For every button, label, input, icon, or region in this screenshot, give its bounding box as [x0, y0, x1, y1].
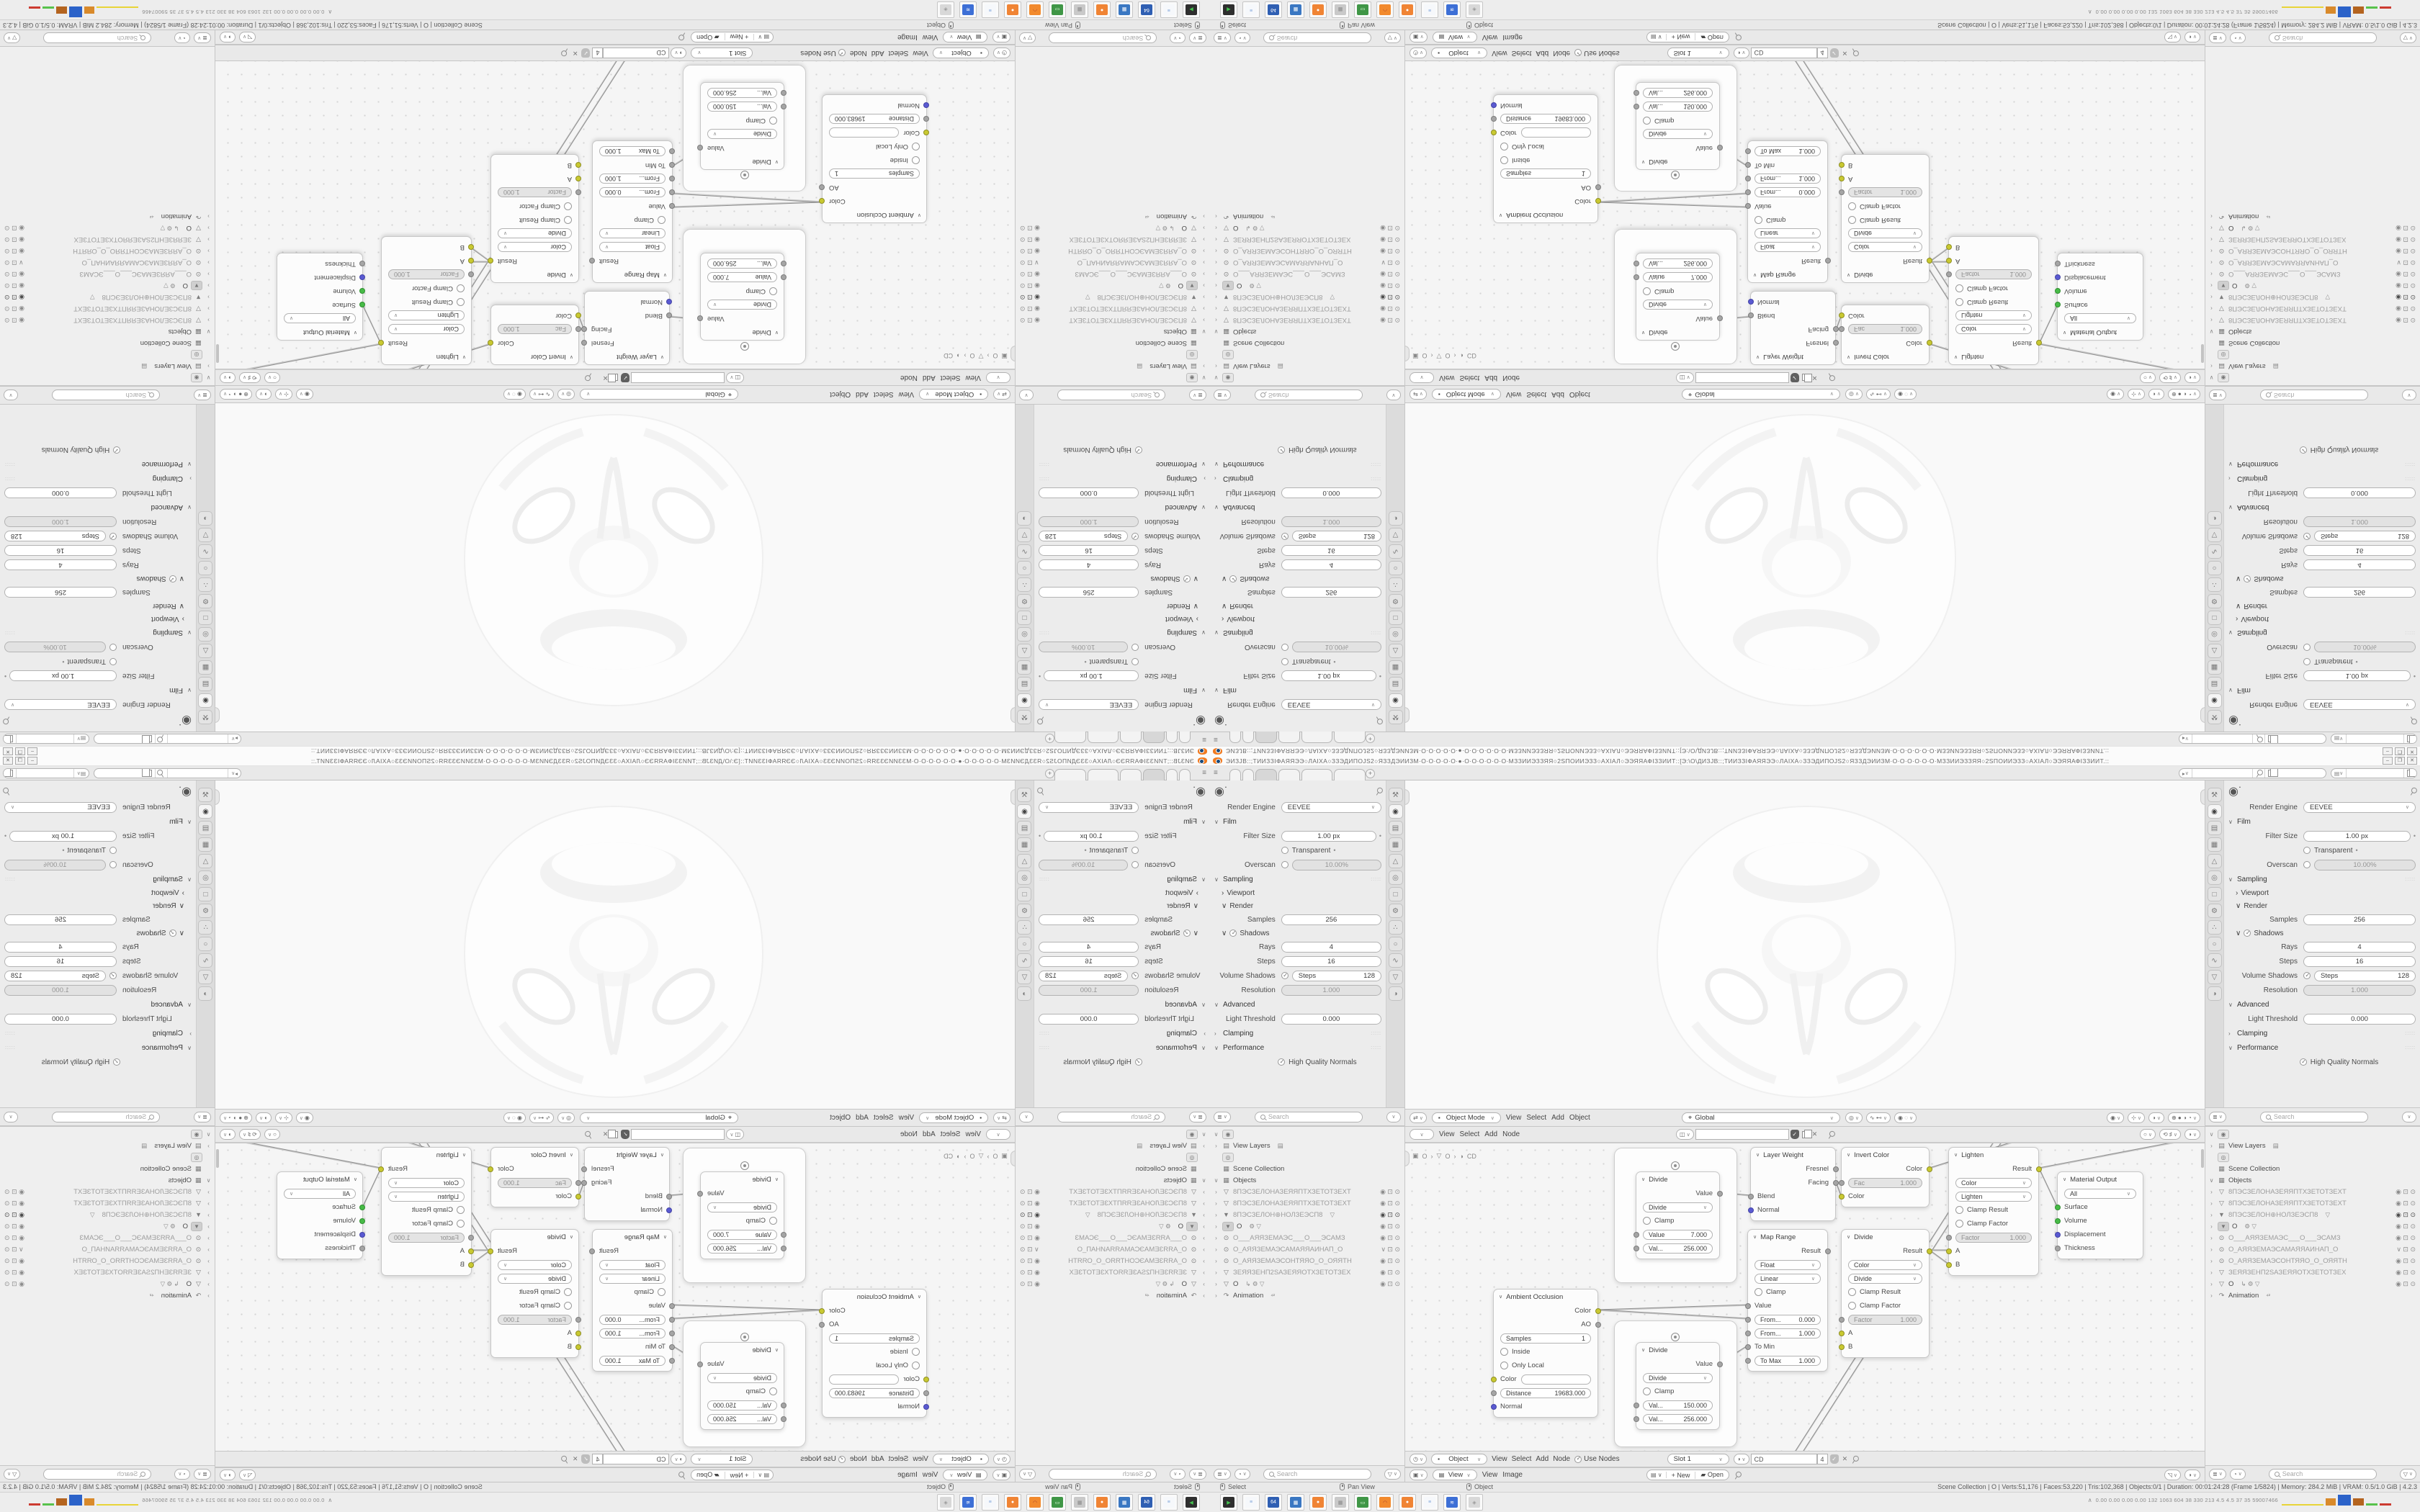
- outliner-item[interactable]: ›⊙О_АЯЯЗЕМАЭСАМАЯЯАИНАП_О∨ ⊡ ⊙: [1017, 1243, 1207, 1255]
- node-row-val[interactable]: Val...256.000: [701, 86, 784, 100]
- workspace-tab-1[interactable]: [1229, 769, 1241, 780]
- expand-arrow-icon[interactable]: ›: [1213, 1189, 1219, 1195]
- outliner-item[interactable]: ›▼O⚙ ▽◉ ⊡ ⊙: [1213, 280, 1403, 292]
- outliner-display-mode-button[interactable]: ≣∨: [1189, 1112, 1206, 1122]
- outliner-filter-button[interactable]: ∨: [4, 1112, 18, 1122]
- prop-checkbox[interactable]: [109, 644, 117, 651]
- input-socket-gray[interactable]: [1745, 1358, 1751, 1364]
- shader-node-divide[interactable]: ∨DivideValueDivide∨ClampValue7.000Val...…: [1636, 253, 1720, 341]
- viewport-sidebar-toggle-left[interactable]: [1405, 707, 1410, 723]
- node-value-field[interactable]: To Max1.000: [599, 147, 665, 157]
- visibility-toggles[interactable]: ◉ ⊡ ⊙: [1380, 305, 1403, 313]
- properties-tab-object[interactable]: □: [199, 887, 213, 901]
- prop-checkbox[interactable]: [1135, 1058, 1142, 1066]
- viewport-3d[interactable]: [1405, 403, 2205, 732]
- node-value-field[interactable]: Value7.000: [707, 273, 777, 283]
- node-row-value[interactable]: Value7.000: [701, 1228, 784, 1241]
- viewlayer-copy-icon[interactable]: [2404, 734, 2416, 743]
- node-header[interactable]: ∨Lighten: [1949, 1148, 2038, 1162]
- prop-value-field[interactable]: 1.000: [4, 985, 117, 996]
- visibility-toggles[interactable]: ◉ ⊡ ⊙: [1017, 1200, 1040, 1207]
- header-right-button-1[interactable]: ◑ ∨: [220, 1470, 236, 1480]
- menu-add[interactable]: Add: [856, 1114, 869, 1122]
- menu-node[interactable]: Node: [900, 1130, 918, 1138]
- unlink-icon[interactable]: ✕: [603, 374, 609, 382]
- shader-node-divide[interactable]: ∨DivideValueDivide∨ClampValue7.000Val...…: [700, 1171, 784, 1259]
- expand-arrow-icon[interactable]: ›: [1201, 260, 1207, 266]
- prop-checkbox[interactable]: [109, 972, 117, 979]
- node-row-val[interactable]: Val...256.000: [1636, 1412, 1719, 1426]
- output-socket-yellow[interactable]: [379, 1166, 385, 1172]
- image-editor-type-button[interactable]: ▣∨: [1410, 1470, 1428, 1480]
- section-sampling[interactable]: ∨Sampling:::::: [4, 872, 192, 886]
- expand-arrow-icon[interactable]: ›: [1201, 1200, 1207, 1207]
- outliner-display-mode-button[interactable]: ≣∨: [2209, 1112, 2226, 1122]
- outliner-item[interactable]: ›⊙О_АЯЯЗЕМАЭСОНТЯЯО_О_ОЯЯТН◉ ⊡ ⊙: [1017, 246, 1207, 257]
- node-row-color[interactable]: Color∨: [491, 1258, 578, 1272]
- viewlayer-selector[interactable]: ▤∨: [3, 734, 89, 744]
- section-advanced[interactable]: ∨Advanced: [4, 500, 192, 515]
- visibility-toggles[interactable]: ◉ ⊡ ⊙: [1017, 1280, 1040, 1288]
- properties-tab-scene[interactable]: △: [1018, 854, 1032, 868]
- prop-value-field[interactable]: 10.00%: [1292, 642, 1381, 653]
- properties-tab-modifiers[interactable]: ⚙: [2208, 594, 2222, 608]
- expand-arrow-icon[interactable]: ›: [1213, 1212, 1219, 1218]
- node-header[interactable]: ∨Divide: [701, 1172, 784, 1187]
- input-socket-gray[interactable]: [1748, 1194, 1754, 1200]
- subsection-shadows[interactable]: ∨Shadows: [1039, 572, 1206, 585]
- output-socket-yellow[interactable]: [488, 1166, 494, 1172]
- copy-icon[interactable]: [1802, 1131, 1809, 1138]
- visibility-toggles[interactable]: ◉ ⊡ ⊙: [1380, 1200, 1403, 1207]
- tray-expand-icon[interactable]: ∧: [328, 9, 332, 15]
- material-name-field[interactable]: CD: [1751, 1454, 1817, 1464]
- editor-type-button[interactable]: ≣∨: [1214, 33, 1231, 44]
- properties-tab-world[interactable]: ◎: [1018, 627, 1032, 642]
- subsection-checkbox[interactable]: [1183, 930, 1191, 937]
- input-socket-green[interactable]: [2055, 1205, 2061, 1210]
- prop-value-field[interactable]: 0.000: [1281, 488, 1381, 499]
- properties-tab-object[interactable]: □: [1389, 887, 1403, 901]
- visibility-toggles[interactable]: ◉ ⊡ ⊙: [2396, 271, 2419, 279]
- outliner-item[interactable]: ›▽ЗЕЯЯЗЕНП2SАЗЕЯЯОТХЗЕТОТЗЕХ◉ ⊡ ⊙: [1213, 234, 1403, 246]
- pin-icon[interactable]: [1036, 786, 1046, 796]
- prop-check-wrap[interactable]: High Quality Normals: [1063, 446, 1142, 454]
- node-header[interactable]: ∨Ambient Occlusion: [1494, 1290, 1597, 1304]
- viewport-toggle-2[interactable]: ◑ ∨: [256, 1112, 272, 1123]
- node-value-field[interactable]: Fac1.000: [1848, 325, 1922, 335]
- taskbar-app-blender[interactable]: ●: [1309, 1, 1327, 18]
- outliner-item[interactable]: ›▽8ПЭСЗЕЛОНАЗЕЯЯПТХЗЕТОТЗЕХТ◉ ⊡ ⊙: [2208, 1186, 2419, 1197]
- material-browse-button[interactable]: ◑∨: [1734, 48, 1749, 58]
- bottom-search-input[interactable]: Search: [1263, 1469, 1371, 1480]
- properties-tab-object[interactable]: □: [2208, 611, 2222, 625]
- viewport-button-0[interactable]: ◎ ∨: [1845, 1112, 1863, 1123]
- subsection-viewport[interactable]: ›Viewport: [2228, 886, 2416, 899]
- prop-value-field[interactable]: 4: [2303, 942, 2416, 953]
- viewport-toggle-1[interactable]: ⊹ ∨: [275, 1112, 292, 1123]
- outliner-item[interactable]: ›▼O⚙ ▽◉ ⊡ ⊙: [2208, 280, 2419, 292]
- use-nodes-checkbox[interactable]: Use Nodes: [1574, 1455, 1619, 1463]
- node-checkbox[interactable]: [912, 1348, 920, 1356]
- properties-tab-physics[interactable]: ○: [1389, 561, 1403, 575]
- viewport-editor-type-button[interactable]: ⇄∨: [993, 389, 1010, 400]
- node-row-samples[interactable]: Samples1: [1494, 1331, 1597, 1345]
- input-socket-yellow[interactable]: [1839, 1331, 1845, 1336]
- prop-value-field[interactable]: 10.00%: [1039, 642, 1128, 653]
- outliner-item[interactable]: ›▽O↳ ⚙ ▽◉ ⊡ ⊙: [1, 1278, 212, 1290]
- shader-node-map-range[interactable]: ∨Map RangeResultFloat∨Linear∨ClampValueF…: [1747, 1229, 1828, 1372]
- outliner-item[interactable]: ›⊙О___АЯЯЗЕМАЭС___О___ЭСАМЗ◉ ⊡ ⊙: [1213, 1232, 1403, 1243]
- node-value-field[interactable]: Samples1: [1500, 169, 1591, 179]
- outliner-display-mode-button[interactable]: ≣∨: [194, 390, 211, 401]
- visibility-toggles[interactable]: ◉ ⊡ ⊙: [1380, 1188, 1403, 1196]
- node-checkbox[interactable]: [1848, 216, 1856, 224]
- properties-tab-object[interactable]: □: [1018, 887, 1032, 901]
- outliner-item[interactable]: ›⊙О_АЯЯЗЕМАЭСАМАЯЯАИНАП_О∨ ⊡ ⊙: [1213, 257, 1403, 269]
- node-dropdown[interactable]: Divide∨: [707, 300, 777, 310]
- prop-key-value-field[interactable]: Steps128: [1039, 531, 1128, 542]
- prop-checkbox[interactable]: [1131, 972, 1139, 979]
- shader-node-divide[interactable]: ∨DivideValueDivide∨ClampValue7.000Val...…: [1636, 1171, 1720, 1259]
- expand-arrow-icon[interactable]: ›: [2208, 237, 2215, 243]
- node-row-val[interactable]: Val...256.000: [701, 1241, 784, 1255]
- shader-node-lighten[interactable]: ∨LightenResultColor∨Lighten∨Clamp Result…: [1948, 1147, 2039, 1276]
- prop-value-field[interactable]: 1.00 px: [2303, 831, 2411, 842]
- node-checkbox[interactable]: [457, 298, 465, 306]
- properties-tab-particles[interactable]: ∴: [2208, 577, 2222, 592]
- subsection-checkbox[interactable]: [1183, 575, 1191, 582]
- visibility-toggles[interactable]: ◉ ⊡ ⊙: [1380, 1211, 1403, 1219]
- mode-dropdown[interactable]: ▪Object Mode∨: [919, 1112, 988, 1123]
- taskbar-app-calculator[interactable]: ▦: [1287, 1494, 1304, 1511]
- outliner-item[interactable]: ›⊙О_АЯЯЗЕМАЭСОНТЯЯО_О_ОЯЯТН◉ ⊡ ⊙: [1, 1255, 212, 1266]
- outliner-item[interactable]: ›▽O↳ ⚙ ▽◉ ⊡ ⊙: [1213, 1278, 1403, 1290]
- workspace-tab-6[interactable]: [1054, 732, 1086, 743]
- node-checkbox[interactable]: [1955, 1220, 1963, 1228]
- taskbar-app-save-64[interactable]: 64: [1138, 1494, 1155, 1511]
- node-row-from[interactable]: From...0.000: [1748, 186, 1827, 199]
- header-right-button-0[interactable]: ○ ∨: [264, 372, 280, 383]
- prop-checkbox[interactable]: [2300, 446, 2307, 454]
- expand-arrow-icon[interactable]: ›: [1213, 1200, 1219, 1207]
- image-open-button[interactable]: ▰ Open: [691, 1471, 724, 1479]
- node-dropdown[interactable]: Color∨: [388, 325, 465, 335]
- node-row-clamp[interactable]: Clamp: [701, 1214, 784, 1228]
- section-clamping[interactable]: ›Clamping:::::: [2228, 1026, 2416, 1040]
- subsection-render[interactable]: ∨Render: [2228, 600, 2416, 613]
- node-value-field[interactable]: Val...256.000: [707, 1243, 777, 1254]
- menu-view[interactable]: View: [1492, 1455, 1507, 1463]
- outliner-item[interactable]: ›⊙О_АЯЯЗЕМАЭСАМАЯЯАИНАП_О∨ ⊡ ⊙: [1017, 257, 1207, 269]
- subsection-render[interactable]: ∨Render: [1039, 600, 1206, 613]
- prop-value-field[interactable]: 1.00 px: [9, 671, 117, 682]
- properties-tab-output[interactable]: ▤: [1018, 821, 1032, 835]
- node-row-clamp-result[interactable]: Clamp Result: [382, 295, 471, 309]
- node-checkbox[interactable]: [1500, 143, 1508, 150]
- image-new-button[interactable]: + New: [725, 1472, 754, 1479]
- add-workspace-button[interactable]: +: [1366, 734, 1375, 743]
- outliner-item[interactable]: ›▤View Layers▤: [2208, 361, 2419, 372]
- prop-value-field[interactable]: 256: [2303, 588, 2416, 598]
- output-socket-gray[interactable]: [820, 185, 825, 191]
- visibility-toggles[interactable]: ◉ ⊡ ⊙: [1, 1234, 24, 1242]
- section-sampling[interactable]: ∨Sampling:::::: [1214, 872, 1381, 886]
- mode-dropdown[interactable]: ▪Object Mode∨: [1432, 1112, 1501, 1123]
- expand-arrow-icon[interactable]: ›: [1201, 214, 1207, 220]
- properties-tab-physics[interactable]: ○: [2208, 937, 2222, 951]
- properties-tab-output[interactable]: ▤: [199, 821, 213, 835]
- mode-dropdown[interactable]: ▪Object Mode∨: [919, 389, 988, 400]
- node-row-inside[interactable]: Inside: [1494, 1345, 1597, 1359]
- node-row-color[interactable]: Color∨: [382, 323, 471, 336]
- prop-value-field[interactable]: 16: [2303, 546, 2416, 557]
- properties-tab-material[interactable]: ◑: [199, 986, 213, 1001]
- menu-object[interactable]: Object: [1569, 1114, 1590, 1122]
- close-button[interactable]: ✕: [3, 757, 13, 765]
- node-row-val[interactable]: Val...150.000: [1636, 100, 1719, 114]
- node-row-color[interactable]: Color∨: [1949, 1176, 2038, 1189]
- outliner-item[interactable]: ›↷Animation⁴²: [2208, 1290, 2419, 1301]
- expand-arrow-icon[interactable]: ›: [205, 283, 212, 289]
- output-socket-gray[interactable]: [698, 316, 704, 322]
- node-checkbox[interactable]: [1500, 1348, 1508, 1356]
- editor-type-button[interactable]: ≣∨: [194, 1469, 211, 1480]
- visibility-toggles[interactable]: ◉ ⊡ ⊙: [1, 225, 24, 233]
- expand-arrow-icon[interactable]: ›: [1213, 1269, 1219, 1276]
- taskbar-app-gimp[interactable]: ◈: [937, 1, 954, 18]
- menu-image[interactable]: Image: [897, 33, 918, 41]
- scene-selector[interactable]: ▸∨: [2179, 768, 2326, 778]
- section-clamping[interactable]: ›Clamping:::::: [1214, 472, 1381, 486]
- output-socket-gray[interactable]: [820, 1322, 825, 1328]
- expand-arrow-icon[interactable]: ›: [1213, 1223, 1219, 1230]
- taskbar-app-blender-2[interactable]: ●: [1399, 1494, 1416, 1511]
- shader-node-map-range[interactable]: ∨Map RangeResultFloat∨Linear∨ClampValueF…: [592, 140, 673, 283]
- prop-value-field[interactable]: 10.00%: [2314, 860, 2416, 870]
- node-dropdown[interactable]: Divide∨: [1848, 1274, 1922, 1284]
- node-row-clamp-factor[interactable]: Clamp Factor: [491, 1299, 578, 1313]
- slot-dropdown[interactable]: Slot 1∨: [691, 1454, 753, 1464]
- input-socket-gray[interactable]: [2055, 1246, 2061, 1251]
- prop-check-wrap[interactable]: High Quality Normals: [2300, 446, 2378, 454]
- image-view-dropdown[interactable]: ▤View∨: [1433, 1470, 1477, 1480]
- viewport-button-2[interactable]: ◉ ◌ ∨: [503, 1112, 526, 1123]
- taskbar-app-calculator-2[interactable]: ▦: [1332, 1494, 1349, 1511]
- expand-arrow-icon[interactable]: ›: [2208, 225, 2215, 232]
- outliner-item[interactable]: ›▼O⚙ ▽◉ ⊡ ⊙: [2208, 1220, 2419, 1232]
- viewport-button-2[interactable]: ◉ ◌ ∨: [1894, 1112, 1917, 1123]
- node-row-only-local[interactable]: Only Local: [1494, 1359, 1597, 1372]
- prop-checkbox[interactable]: [2303, 533, 2311, 540]
- node-value-field[interactable]: From...0.000: [1754, 188, 1821, 198]
- outliner-item[interactable]: ›▼8ПЭСЗЕЛОН⊕НОЛЗЕЭСП8▽◉ ⊡ ⊙: [2208, 1209, 2419, 1220]
- subsection-shadows[interactable]: ∨Shadows: [4, 927, 192, 940]
- node-row-divide[interactable]: Divide∨: [701, 1371, 784, 1385]
- render-engine-dropdown[interactable]: EEVEE∨: [1039, 802, 1139, 813]
- shader-node-layer-weight[interactable]: ∨Layer WeightFresnelFacingBlendNormal: [1750, 291, 1836, 365]
- node-value-field[interactable]: Factor1.000: [1955, 1233, 2032, 1243]
- node-dropdown[interactable]: All∨: [2064, 1189, 2136, 1199]
- outliner-item[interactable]: ›▽ЗЕЯЯЗЕНП2SАЗЕЯЯОТХЗЕТОТЗЕХ◉ ⊡ ⊙: [1017, 1266, 1207, 1278]
- prop-checkbox[interactable]: [1281, 847, 1289, 854]
- expand-arrow-icon[interactable]: ›: [1201, 1212, 1207, 1218]
- scene-name-field[interactable]: [167, 769, 228, 778]
- node-row-distance[interactable]: Distance19683.000: [1494, 112, 1597, 126]
- node-row-val[interactable]: Val...256.000: [1636, 257, 1719, 271]
- shader-node-canvas[interactable]: ▣O›▽O›◑CD ∨DivideValueDivide∨ClampValue7…: [215, 61, 1015, 369]
- material-browse-button[interactable]: ◫∨: [1676, 372, 1694, 383]
- node-dropdown[interactable]: Divide∨: [498, 229, 572, 239]
- outliner-item[interactable]: ›⊙О_АЯЯЗЕМАЭСАМАЯЯАИНАП_О∨ ⊡ ⊙: [1213, 1243, 1403, 1255]
- prop-value-field[interactable]: 256: [1281, 588, 1381, 598]
- expand-arrow-icon[interactable]: ›: [205, 260, 212, 266]
- expand-arrow-icon[interactable]: ›: [205, 237, 212, 243]
- outliner-display-mode-button[interactable]: ≣∨: [194, 1112, 211, 1122]
- node-checkbox[interactable]: [564, 216, 572, 224]
- visibility-toggles[interactable]: ◉ ⊡ ⊙: [1, 236, 24, 244]
- properties-tab-physics[interactable]: ○: [199, 937, 213, 951]
- menu-view[interactable]: View: [1506, 1114, 1522, 1122]
- workspace-tab-1[interactable]: [1229, 732, 1241, 743]
- outliner-item[interactable]: ∨▦Objects: [1213, 326, 1403, 338]
- menu-add[interactable]: Add: [1551, 390, 1564, 398]
- prop-checkbox[interactable]: [2303, 644, 2311, 651]
- node-dropdown[interactable]: Divide∨: [707, 1202, 777, 1212]
- prop-check-wrap[interactable]: High Quality Normals: [1278, 1058, 1356, 1066]
- node-row-divide[interactable]: Divide∨: [1842, 1272, 1929, 1285]
- output-socket-gray[interactable]: [1717, 1191, 1723, 1197]
- outliner-item[interactable]: ›↷Animation⁴²: [1213, 211, 1403, 222]
- workspace-tab-6[interactable]: [1334, 732, 1366, 743]
- pin-icon[interactable]: [1827, 372, 1836, 382]
- taskbar-app-save-64[interactable]: 64: [1265, 1494, 1282, 1511]
- restore-button[interactable]: ❐: [15, 747, 25, 755]
- bottom-search-input[interactable]: Search: [43, 33, 151, 44]
- node-checkbox[interactable]: [1500, 156, 1508, 164]
- section-advanced[interactable]: ∨Advanced: [1214, 997, 1381, 1012]
- node-checkbox[interactable]: [1754, 216, 1762, 224]
- menu-node[interactable]: Node: [1502, 1130, 1520, 1138]
- properties-tab-render[interactable]: ◉: [1018, 693, 1032, 708]
- shader-node-invert-color[interactable]: ∨Invert ColorColorFac1.000Color: [490, 305, 579, 365]
- shader-node-divide[interactable]: ∨DivideResultColor∨Divide∨Clamp ResultCl…: [490, 1229, 579, 1358]
- prop-checkbox[interactable]: [109, 847, 117, 854]
- taskbar-app-firefox[interactable]: ◠: [1376, 1494, 1394, 1511]
- outliner-item[interactable]: ›▼O⚙ ▽◉ ⊡ ⊙: [1, 280, 212, 292]
- pin-icon[interactable]: [1373, 716, 1383, 726]
- properties-tab-constraints[interactable]: ∿: [1389, 953, 1403, 968]
- header-right-button-0[interactable]: ◹ ∨: [2164, 32, 2181, 42]
- material-name-field[interactable]: CD: [1751, 48, 1817, 58]
- workspace-tab-3[interactable]: [1143, 732, 1165, 743]
- header-right-button-0[interactable]: ○ ∨: [264, 1129, 280, 1140]
- prop-value-field[interactable]: 256: [4, 588, 117, 598]
- visibility-toggles[interactable]: ◉ ⊡ ⊙: [1, 317, 24, 325]
- viewport-3d[interactable]: [1405, 780, 2205, 1109]
- expand-arrow-icon[interactable]: ›: [2208, 1269, 2215, 1276]
- prop-checkbox[interactable]: [109, 658, 117, 665]
- viewlayer-name-field[interactable]: [2347, 734, 2404, 743]
- expand-arrow-icon[interactable]: ›: [1213, 225, 1219, 232]
- prop-checkbox[interactable]: [1131, 658, 1139, 665]
- node-dropdown[interactable]: Divide∨: [1643, 300, 1713, 310]
- node-row-to-max[interactable]: To Max1.000: [1748, 145, 1827, 158]
- render-engine-dropdown[interactable]: EEVEE∨: [4, 802, 117, 813]
- properties-tab-data[interactable]: ▽: [1389, 528, 1403, 542]
- visibility-toggles[interactable]: ◉ ⊡ ⊙: [1017, 317, 1040, 325]
- prop-value-field[interactable]: 1.00 px: [1281, 671, 1376, 682]
- header-right-button-2[interactable]: ◑ ∨: [220, 372, 236, 383]
- workspace-tab-2[interactable]: [1242, 769, 1254, 780]
- properties-tab-material[interactable]: ◑: [1389, 986, 1403, 1001]
- node-checkbox[interactable]: [769, 117, 777, 125]
- outliner-item[interactable]: ›↷Animation⁴²: [2208, 211, 2419, 222]
- scene-copy-icon[interactable]: [2265, 734, 2277, 743]
- visibility-toggles[interactable]: ◉ ⊡ ⊙: [1017, 1211, 1040, 1219]
- outliner-item[interactable]: ∨▦Objects: [1213, 1174, 1403, 1186]
- input-socket-gray[interactable]: [1745, 1317, 1751, 1323]
- properties-tab-modifiers[interactable]: ⚙: [199, 594, 213, 608]
- node-row-val[interactable]: Val...150.000: [701, 1398, 784, 1412]
- node-header[interactable]: ∨Material Output: [2058, 325, 2143, 340]
- image-browse-button[interactable]: ▤ ∨: [1647, 1472, 1667, 1478]
- shading-mode-group[interactable]: ⊕ ● ◑ ◔ ∨: [220, 389, 252, 400]
- properties-tab-data[interactable]: ▽: [2208, 528, 2222, 542]
- node-header[interactable]: ∨Ambient Occlusion: [1494, 208, 1597, 222]
- copy-icon[interactable]: [611, 374, 618, 382]
- scene-copy-icon[interactable]: [2265, 769, 2277, 778]
- subsection-viewport[interactable]: ›Viewport: [1214, 886, 1381, 899]
- properties-tab-scene[interactable]: △: [1389, 644, 1403, 658]
- expand-arrow-icon[interactable]: ›: [1213, 1235, 1219, 1241]
- outliner-filter-button[interactable]: ∨: [1386, 390, 1401, 401]
- menu-view[interactable]: View: [913, 49, 928, 57]
- material-browse-button[interactable]: ◑∨: [1734, 1454, 1749, 1464]
- node-row-lighten[interactable]: Lighten∨: [1949, 309, 2038, 323]
- prop-value-field[interactable]: 16: [2303, 956, 2416, 967]
- pin-icon[interactable]: [1850, 48, 1860, 58]
- outliner-item[interactable]: ›▽8ПЭСЗЕЛОНАЗЕЯЯПТХЗЕТОТЗЕХТ◉ ⊡ ⊙: [1213, 315, 1403, 326]
- properties-tab-output[interactable]: ▤: [2208, 677, 2222, 691]
- menu-select[interactable]: Select: [1526, 1114, 1546, 1122]
- input-socket-gray[interactable]: [1839, 1180, 1845, 1186]
- prop-checkbox[interactable]: [1281, 972, 1289, 979]
- node-row-float[interactable]: Float∨: [593, 1258, 672, 1272]
- prop-checkbox[interactable]: [1281, 533, 1289, 540]
- workspace-tab-3[interactable]: [1143, 769, 1165, 780]
- properties-tab-view-layer[interactable]: ▦: [1389, 837, 1403, 852]
- fake-user-shield-icon[interactable]: ✓: [1791, 1130, 1799, 1139]
- taskbar-app-recorder[interactable]: ▶: [1183, 1, 1200, 18]
- users-count-badge[interactable]: 4: [1817, 48, 1828, 58]
- node-row-distance[interactable]: Distance19683.000: [823, 1386, 926, 1400]
- workspace-tab-6[interactable]: [1334, 769, 1366, 780]
- expand-arrow-icon[interactable]: ›: [1213, 260, 1219, 266]
- properties-tab-modifiers[interactable]: ⚙: [1018, 904, 1032, 918]
- shader-node-canvas[interactable]: ▣O›▽O›◑CD ∨DivideValueDivide∨ClampValue7…: [215, 1143, 1015, 1451]
- expand-arrow-icon[interactable]: ›: [2208, 294, 2215, 301]
- shader-type-dropdown[interactable]: ▪Object∨: [1431, 48, 1487, 58]
- expand-arrow-icon[interactable]: ›: [2208, 248, 2215, 255]
- prop-value-field[interactable]: 0.000: [4, 1014, 117, 1025]
- section-sampling[interactable]: ∨Sampling:::::: [2228, 872, 2416, 886]
- outliner-item[interactable]: ›▽8ПЭСЗЕЛОНАЗЕЯЯПТХЗЕТОТЗЕХТ◉ ⊡ ⊙: [1017, 303, 1207, 315]
- expand-arrow-icon[interactable]: ›: [1201, 1223, 1207, 1230]
- outliner-item[interactable]: ›▼8ПЭСЗЕЛОН⊕НОЛЗЕЭСП8▽◉ ⊡ ⊙: [1017, 1209, 1207, 1220]
- visibility-toggles[interactable]: ◉ ⊡ ⊙: [2396, 225, 2419, 233]
- node-checkbox[interactable]: [912, 1362, 920, 1369]
